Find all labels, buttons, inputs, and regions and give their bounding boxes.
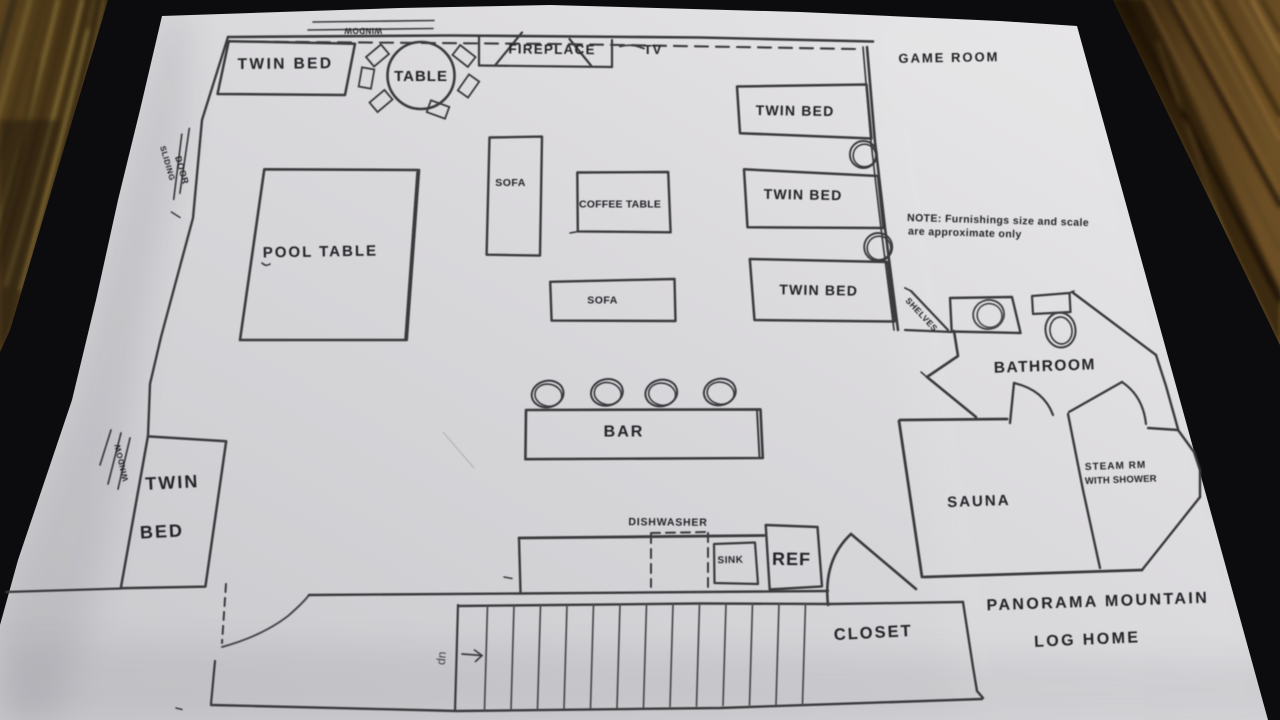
svg-text:DISHWASHER: DISHWASHER xyxy=(628,516,707,529)
svg-text:BATHROOM: BATHROOM xyxy=(994,356,1097,377)
svg-text:GAME ROOM: GAME ROOM xyxy=(898,49,999,66)
svg-text:up: up xyxy=(435,651,450,666)
svg-text:BAR: BAR xyxy=(604,424,645,441)
svg-text:TWIN: TWIN xyxy=(145,471,200,494)
svg-text:BED: BED xyxy=(139,520,184,542)
svg-text:COFFEE TABLE: COFFEE TABLE xyxy=(579,199,661,211)
svg-text:WINDOW: WINDOW xyxy=(344,26,382,35)
svg-text:TWIN BED: TWIN BED xyxy=(238,55,334,73)
svg-text:REF: REF xyxy=(772,549,811,569)
svg-text:TV: TV xyxy=(644,42,663,57)
svg-text:SOFA: SOFA xyxy=(587,295,618,307)
svg-text:FIREPLACE: FIREPLACE xyxy=(508,41,595,57)
svg-text:SOFA: SOFA xyxy=(495,177,526,189)
svg-text:TWIN BED: TWIN BED xyxy=(756,102,835,119)
svg-text:SAUNA: SAUNA xyxy=(947,492,1011,511)
svg-text:TWIN BED: TWIN BED xyxy=(764,186,843,203)
svg-text:TWIN BED: TWIN BED xyxy=(779,281,858,298)
svg-text:STEAM RM: STEAM RM xyxy=(1085,460,1147,473)
svg-text:POOL TABLE: POOL TABLE xyxy=(263,242,379,261)
svg-text:SINK: SINK xyxy=(717,555,743,566)
svg-text:TABLE: TABLE xyxy=(394,68,448,85)
